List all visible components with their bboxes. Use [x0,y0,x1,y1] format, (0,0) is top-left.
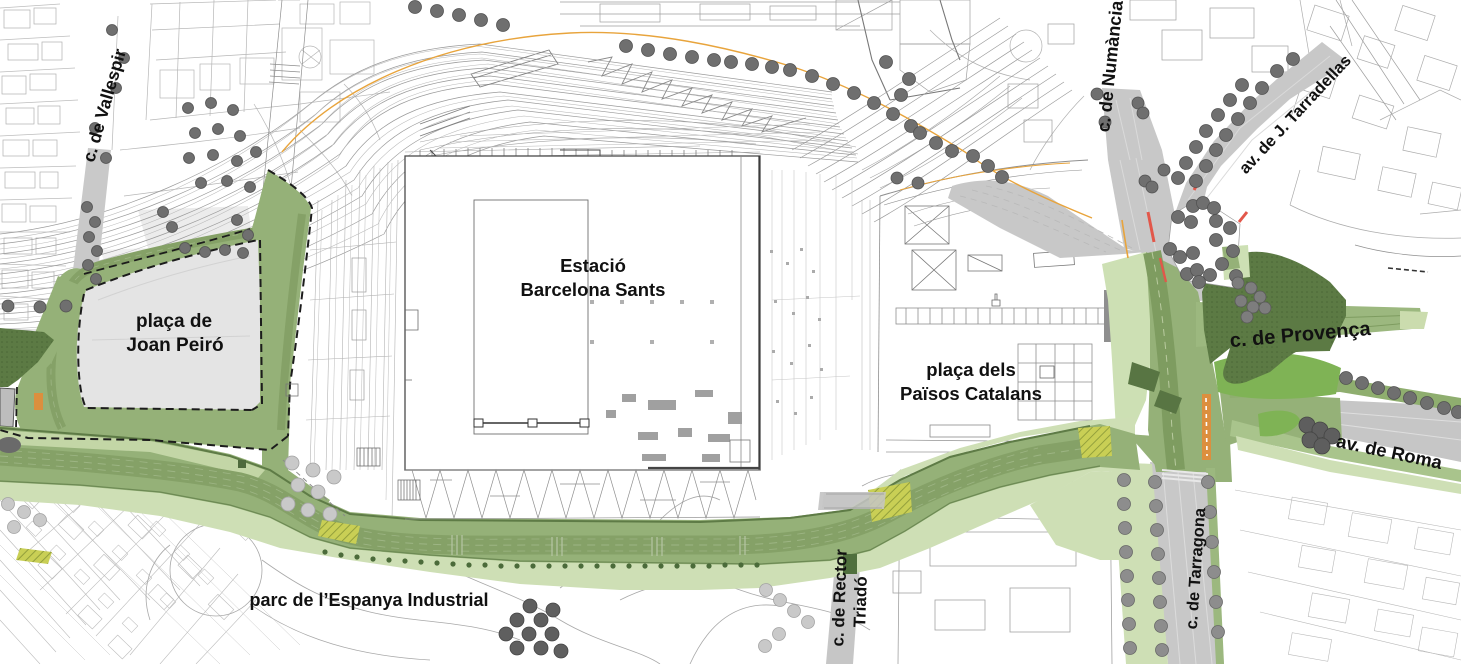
svg-text:Barcelona Sants: Barcelona Sants [521,279,666,300]
svg-text:Estació: Estació [560,255,626,276]
svg-text:plaça de: plaça de [136,311,212,332]
svg-text:Triadó: Triadó [850,576,871,628]
svg-text:plaça dels: plaça dels [926,359,1015,380]
svg-text:parc de l’Espanya Industrial: parc de l’Espanya Industrial [249,590,488,610]
svg-text:Països Catalans: Països Catalans [900,383,1042,404]
svg-text:c. de Rector: c. de Rector [828,548,850,646]
svg-text:Joan Peiró: Joan Peiró [126,335,223,356]
